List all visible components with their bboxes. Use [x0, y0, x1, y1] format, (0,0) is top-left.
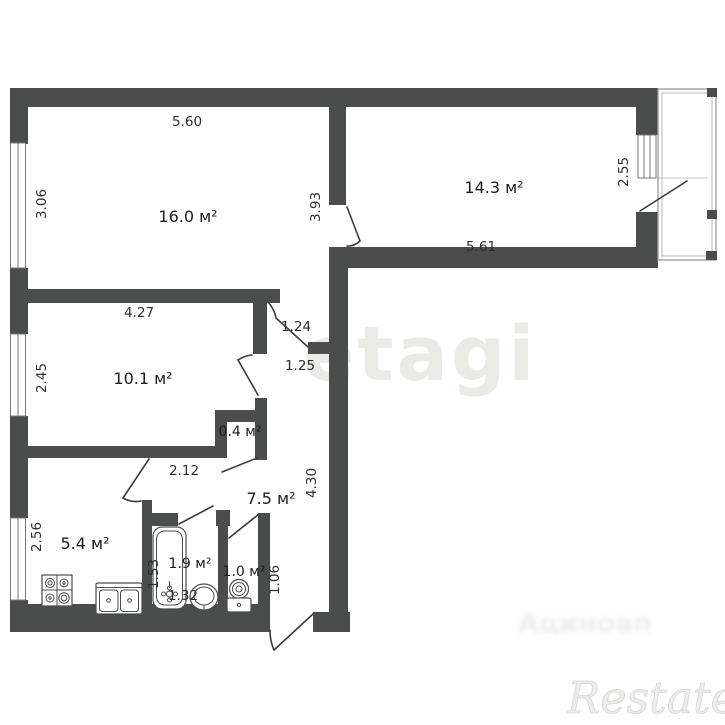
- room-area-label-room2: 10.1 м²: [113, 369, 172, 388]
- room-area-label-bedroom: 14.3 м²: [464, 178, 523, 197]
- kitchen-sink-icon: [96, 583, 142, 614]
- room-area-label-wc: 1.0 м²: [223, 564, 266, 580]
- window-symbol: [11, 518, 26, 600]
- room-area-label-kitchen: 5.4 м²: [60, 534, 109, 553]
- window-symbol: [11, 334, 26, 416]
- dimension-label: 1.24: [281, 319, 311, 335]
- window-symbol: [11, 143, 26, 268]
- dimension-label: 3.06: [34, 189, 50, 219]
- dimension-label: 3.93: [308, 192, 324, 222]
- floorplan-image: etagi Ациноап Restate: [0, 0, 725, 725]
- dimension-label: 5.61: [466, 239, 496, 255]
- restate-watermark: Restate: [566, 673, 725, 724]
- room-area-label-bathroom: 1.9 м²: [169, 556, 212, 572]
- room-area-label-living: 16.0 м²: [158, 207, 217, 226]
- dimension-label: 5.60: [172, 114, 202, 130]
- room-area-label-hallway: 7.5 м²: [246, 489, 295, 508]
- dimension-label: 1.25: [285, 358, 315, 374]
- dimension-label: 4.30: [304, 468, 320, 498]
- dimension-label: 2.55: [616, 157, 632, 187]
- dimension-label: 1.53: [146, 559, 162, 589]
- dimension-label: 2.45: [34, 363, 50, 393]
- dimension-label: 2.56: [29, 522, 45, 552]
- dimension-label: 1.32: [168, 588, 198, 604]
- stove-icon: [42, 575, 72, 606]
- dimension-label: 2.12: [169, 463, 199, 479]
- room-area-label-storage: 0.4 м²: [219, 424, 262, 440]
- blurred-watermark: Ациноап: [518, 608, 652, 639]
- dimension-label: 4.27: [124, 305, 154, 321]
- dimension-label: 1.06: [267, 565, 283, 595]
